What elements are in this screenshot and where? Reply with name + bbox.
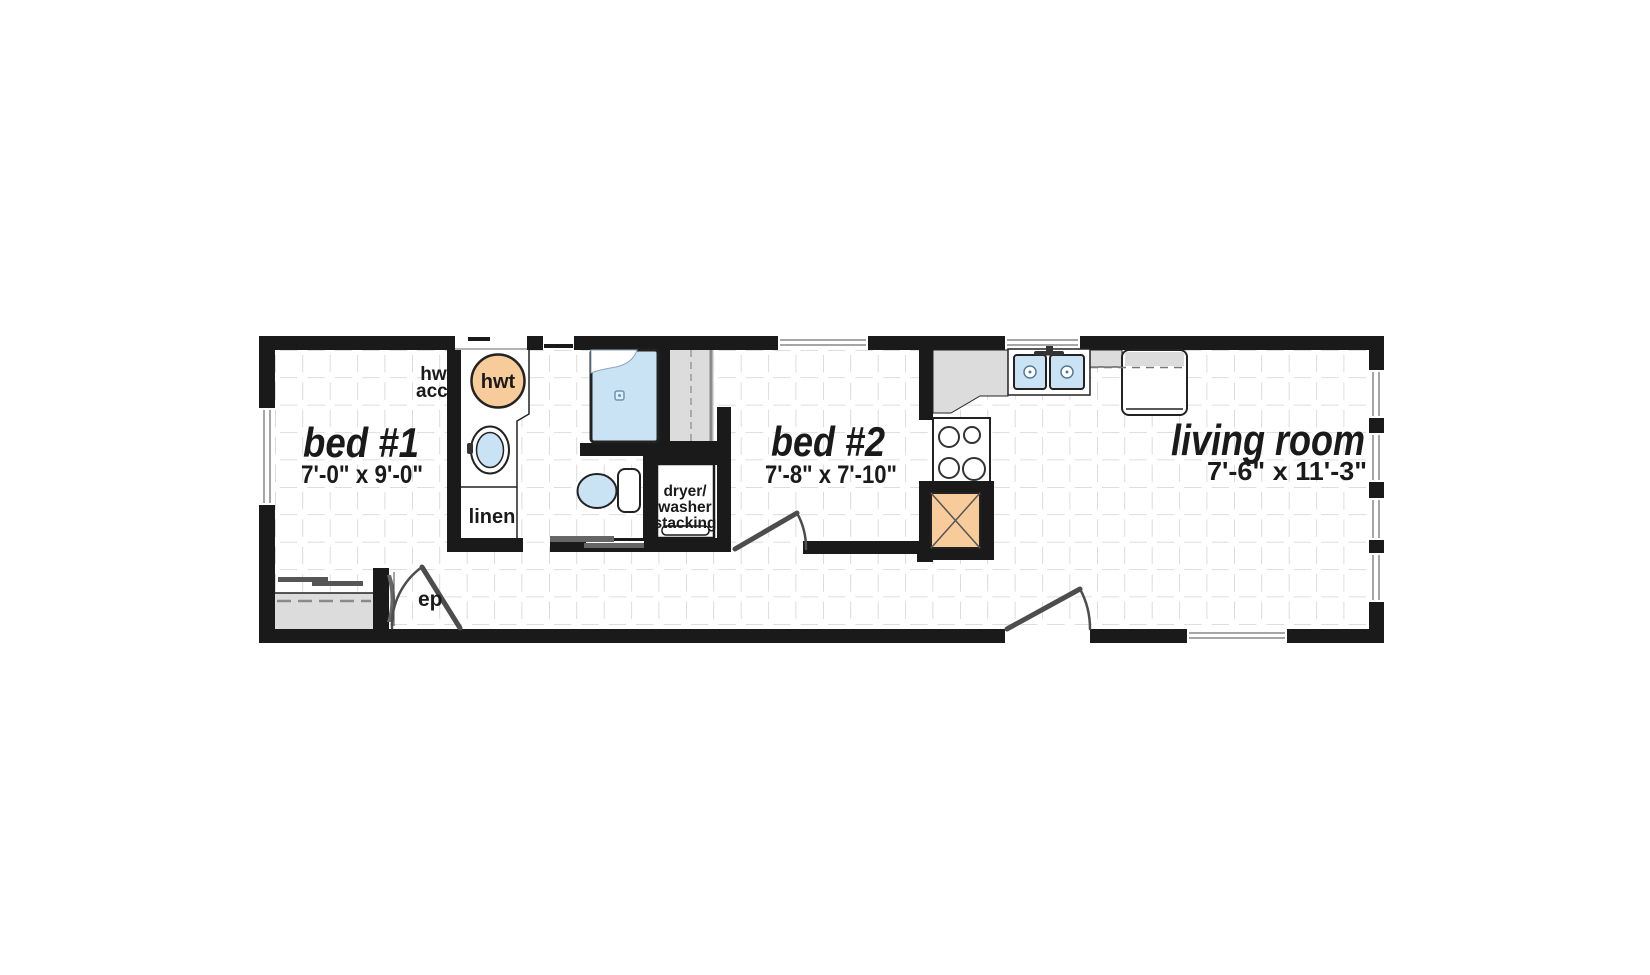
linen-label: linen (469, 506, 516, 528)
faucet-spout (1046, 346, 1053, 351)
bed1-dims: 7'-0" x 9'-0" (301, 461, 423, 489)
floor-plan-page: dryer/ washer stacking (0, 0, 1650, 975)
laundry-label-2: washer (657, 499, 711, 516)
bed1-name: bed #1 (303, 419, 419, 466)
bed2-name: bed #2 (771, 418, 885, 465)
counter-right (1090, 350, 1122, 367)
kitchen-window (1005, 336, 1080, 350)
laundry-stack: dryer/ washer stacking (654, 464, 717, 538)
wardrobe-closet (670, 350, 714, 441)
washer-handle (467, 443, 473, 454)
wall-bed2-right (919, 350, 933, 420)
bed2-closet (670, 350, 714, 441)
laundry-label-3: stacking (654, 515, 717, 532)
living-dims: 7'-6" x 11'-3" (1207, 456, 1367, 486)
toilet-tank (618, 469, 640, 512)
laundry-label-1: dryer/ (663, 483, 707, 500)
wall-ep-stub (373, 568, 389, 629)
bed1-window (259, 408, 275, 505)
hwt-access-panel (455, 336, 527, 350)
washer-drum (477, 433, 504, 468)
wall-laundry-bottom (643, 538, 731, 552)
bath-vent-tick (544, 344, 573, 348)
toilet-bowl (578, 474, 617, 508)
bed1-closet-area (275, 593, 373, 629)
bed2-window (778, 336, 868, 350)
wall-linen-bottom (447, 538, 523, 552)
faucet (1034, 351, 1064, 356)
entry-door-opening (1005, 629, 1090, 643)
bath-slider-2 (584, 543, 644, 548)
floor-plan-drawing: dryer/ washer stacking (0, 0, 1650, 975)
hwt-access-tick (468, 337, 490, 341)
cabinet-over-fridge (1125, 352, 1184, 366)
hwt-label: hwt (481, 371, 516, 393)
wall-laundry-left (643, 452, 657, 552)
bed2-dims: 7'-8" x 7'-10" (765, 461, 897, 489)
wall-closet-stub (717, 407, 731, 443)
closet-slider-2 (312, 581, 363, 586)
ep-label: ep (418, 588, 443, 611)
bath-slider-1 (550, 536, 614, 542)
wall-bed2-bottom (803, 541, 919, 554)
hwt-acc-label-2: acc. (416, 381, 453, 402)
living-bottom-window (1187, 629, 1287, 643)
